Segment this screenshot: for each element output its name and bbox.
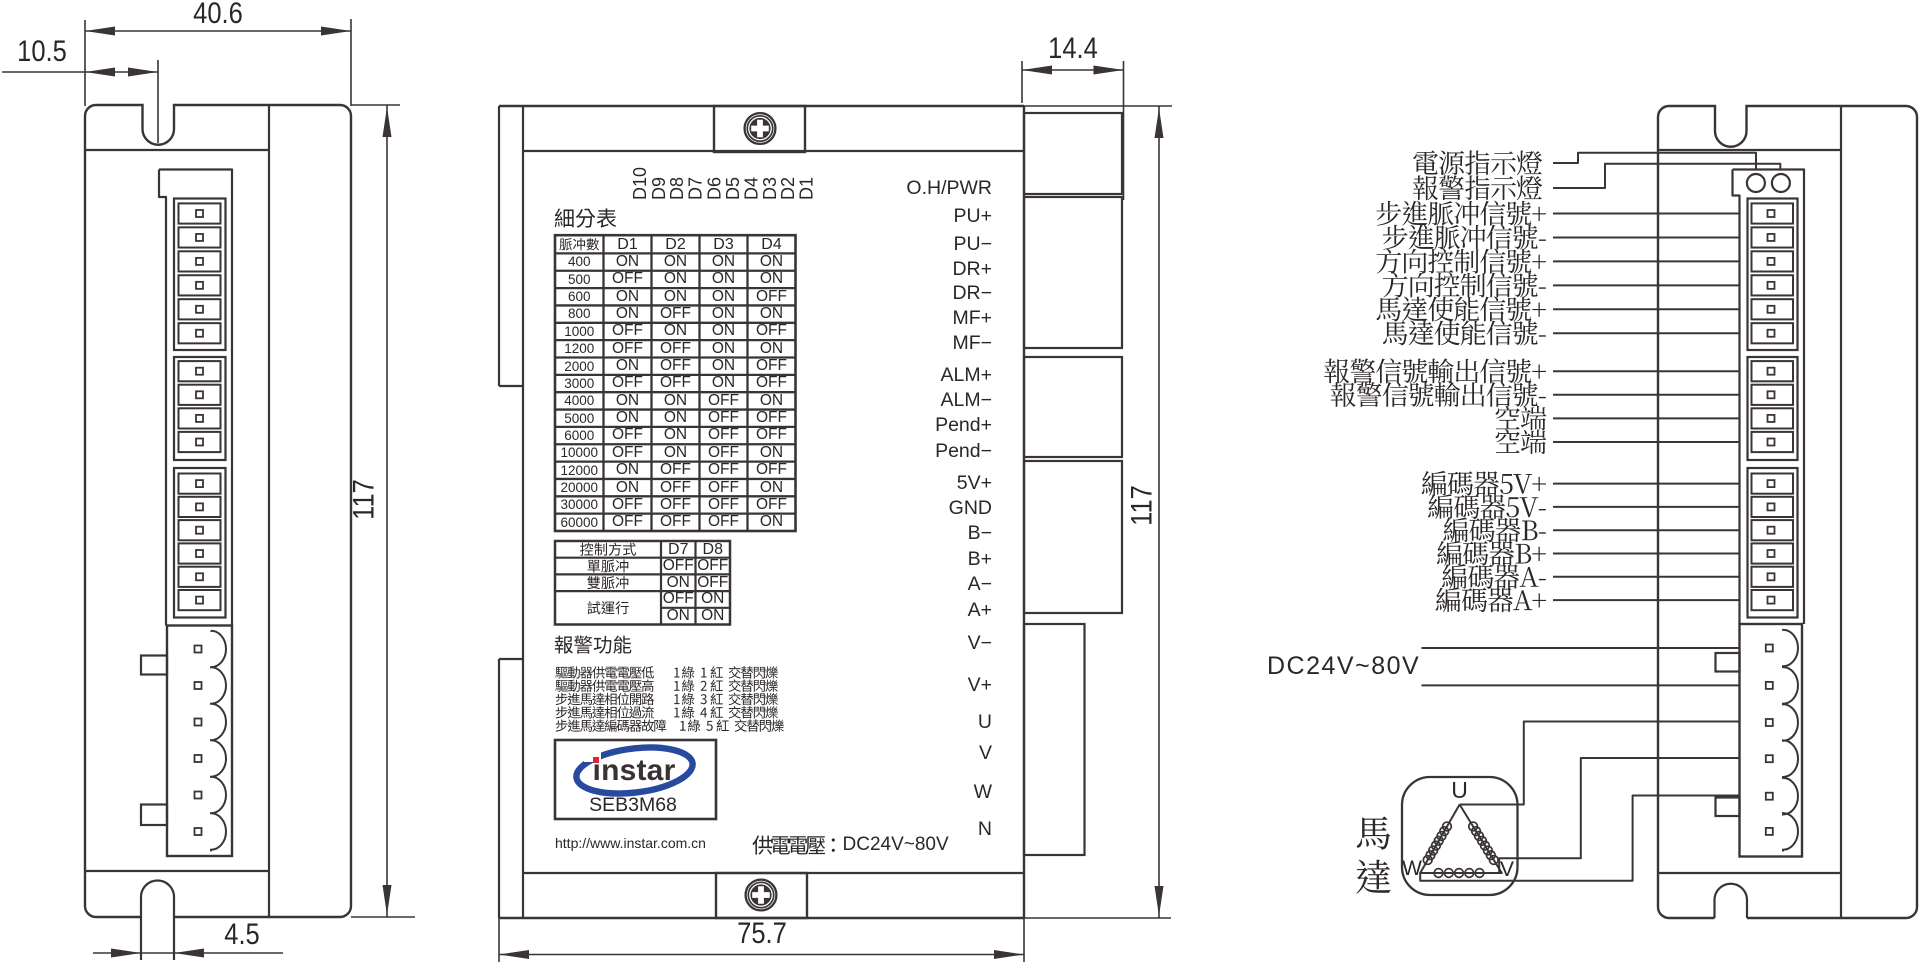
svg-text:D7: D7 [685,177,705,200]
svg-text:D5: D5 [723,177,743,200]
svg-text:D1: D1 [797,177,817,200]
svg-text:D3: D3 [760,177,780,200]
svg-text:D6: D6 [705,177,725,200]
svg-text:D4: D4 [742,177,762,200]
svg-text:D9: D9 [649,177,669,200]
svg-text:D8: D8 [667,177,687,200]
svg-text:D2: D2 [778,177,798,200]
svg-text:D10: D10 [630,167,650,200]
